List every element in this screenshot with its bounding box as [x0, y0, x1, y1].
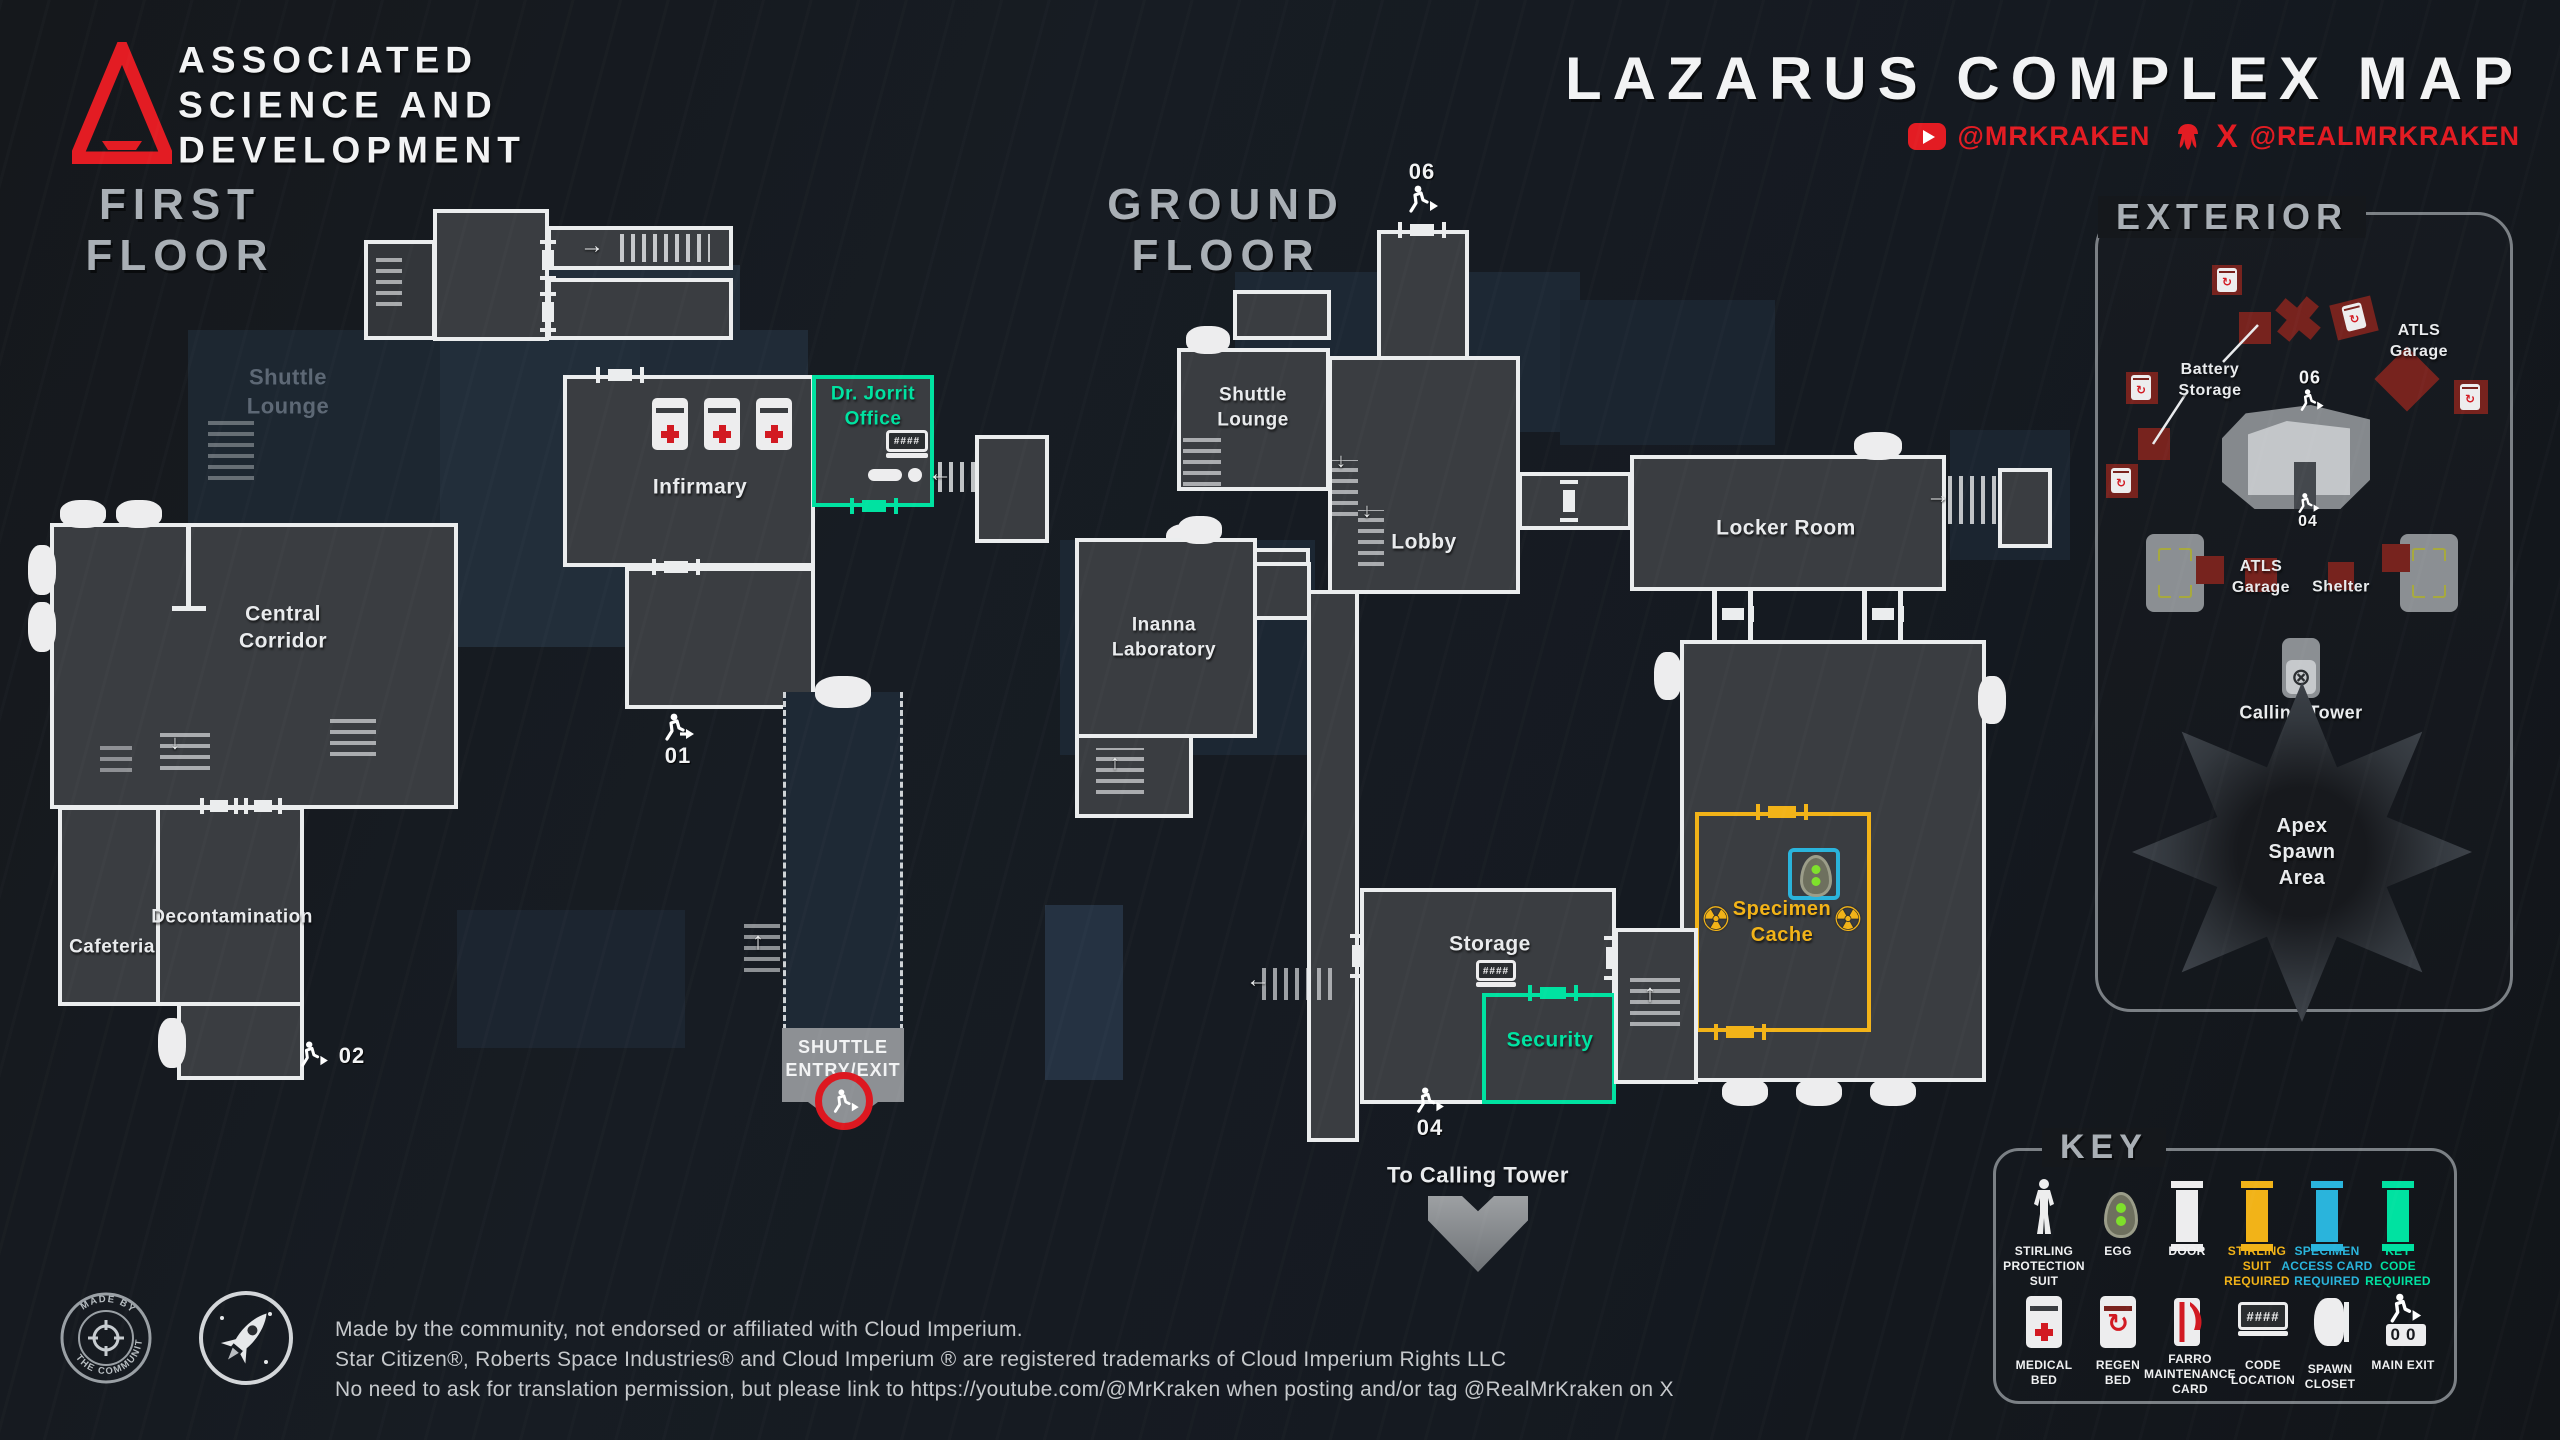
- ground-floor-title: GROUND FLOOR: [1107, 180, 1345, 281]
- room-decon-annex: [177, 1002, 304, 1080]
- stairs-icon: [1096, 748, 1144, 794]
- exit-runner-icon: [2294, 492, 2320, 514]
- exit-01-label: 01: [665, 743, 691, 769]
- spawn-closet-icon-bar: [2344, 1302, 2349, 1342]
- exit-runner-icon: [2296, 388, 2324, 412]
- code-location-icon: ####: [2238, 1302, 2288, 1336]
- keycode-door: [850, 498, 898, 514]
- corridor-right-of-office: [975, 435, 1049, 543]
- room-upper-b: [547, 278, 733, 340]
- interior-wall: [186, 523, 191, 609]
- exit-04-label: 04: [1417, 1115, 1443, 1141]
- footer-disclaimer-1: Made by the community, not endorsed or a…: [335, 1318, 1023, 1342]
- shuttle-exit-icon: [815, 1072, 873, 1130]
- youtube-handle: @MRKRAKEN: [1958, 121, 2151, 152]
- stair-arrow-down: ↓: [1336, 450, 1346, 473]
- key-item-label: CODE LOCATION: [2231, 1358, 2295, 1388]
- exit-runner-icon: [296, 1040, 328, 1068]
- door: [540, 292, 556, 332]
- first-floor-title: FIRST FLOOR: [86, 180, 275, 281]
- exterior-structure: [2196, 556, 2224, 584]
- room-gf-top: [1377, 230, 1469, 360]
- org-name: ASSOCIATED SCIENCE AND DEVELOPMENT: [178, 37, 526, 172]
- door: [1560, 480, 1578, 522]
- medical-bed-icon: [2026, 1296, 2062, 1348]
- key-item-label: STIRLING SUIT REQUIRED: [2224, 1244, 2290, 1289]
- body-icon: [868, 462, 914, 488]
- spawn-closet-icon: [815, 676, 871, 708]
- key-item-label: SPAWN CLOSET: [2305, 1362, 2355, 1392]
- door: [1398, 222, 1446, 238]
- specimen-cache-label: Specimen Cache: [1733, 896, 1831, 948]
- stair-arrow-up: ↑: [1110, 752, 1120, 775]
- ground-floor-bg: [1045, 905, 1123, 1080]
- kraken-icon: [2172, 121, 2204, 153]
- spawn-closet-icon: [1722, 1078, 1768, 1106]
- community-badge: MADE BY THE COMMUNITY: [58, 1290, 154, 1386]
- door: [652, 559, 700, 575]
- room-cafeteria: [58, 806, 160, 1006]
- specimen-card-door-icon: [2316, 1190, 2338, 1242]
- stairs-icon: [376, 258, 402, 306]
- stair-arrow-down: ↓: [170, 732, 180, 755]
- stair-arrow-left: ←: [1246, 966, 1270, 994]
- spawn-closet-icon: [1978, 676, 2006, 724]
- stirling-suit-door: [1714, 1024, 1766, 1040]
- shuttle-lounge-label-ff: Shuttle Lounge: [247, 363, 329, 420]
- spawn-closet-icon: [1178, 516, 1222, 544]
- stairs-icon: [100, 744, 132, 772]
- exit-02-label: 02: [339, 1043, 365, 1069]
- spawn-closet-icon: [1796, 1078, 1842, 1106]
- exterior-exit-06-label: 06: [2299, 368, 2321, 389]
- spawn-closet-icon: [116, 500, 162, 528]
- regen-bed-icon: ↻: [2100, 1296, 2136, 1348]
- stairs-icon: [620, 234, 710, 262]
- key-item-label: REGEN BED: [2096, 1358, 2140, 1388]
- key-item-label: EGG: [2104, 1244, 2132, 1259]
- keycode-door-icon: [2387, 1190, 2409, 1242]
- radiation-icon: ☢: [1833, 903, 1863, 937]
- central-corridor-label: Central Corridor: [239, 601, 327, 656]
- corridor-inanna-link: [1253, 562, 1311, 620]
- corridor-gf-vertical: [1307, 590, 1359, 1142]
- key-item-label: FARRO MAINTENANCE CARD: [2144, 1352, 2236, 1397]
- spawn-closet-icon: [1186, 326, 1230, 354]
- stair-arrow-up: ↑: [1644, 980, 1656, 1008]
- poster-title: LAZARUS COMPLEX MAP: [1565, 44, 2524, 113]
- spawn-closet-icon: [1854, 432, 1902, 460]
- room-gf-upper-mid: [1233, 290, 1331, 340]
- medical-bed-icon: [652, 398, 688, 450]
- key-title: KEY: [2042, 1128, 2166, 1167]
- room-below-infirmary: [625, 567, 815, 709]
- main-exit-digits: 00: [2386, 1324, 2426, 1346]
- lobby-label: Lobby: [1391, 528, 1457, 555]
- atls-garage-bottom-label: ATLS Garage: [2232, 557, 2290, 599]
- stair-arrow-left: ←: [928, 460, 952, 488]
- calling-tower-arrow: [1428, 1196, 1528, 1272]
- first-floor-bg: [457, 910, 685, 1048]
- room-locker-landing: [1998, 468, 2052, 548]
- battery-storage-label: Battery Storage: [2178, 360, 2241, 402]
- stirling-suit-door-icon: [2246, 1190, 2268, 1242]
- spawn-closet-icon: [28, 545, 56, 595]
- code-location-icon: ####: [886, 430, 928, 458]
- asd-logo-icon: [72, 42, 172, 164]
- medical-bed-icon: [756, 398, 792, 450]
- footer-disclaimer-3: No need to ask for translation permissio…: [335, 1378, 1674, 1402]
- door: [200, 798, 238, 814]
- key-item-label: MAIN EXIT: [2371, 1358, 2434, 1373]
- exterior-structure: [2382, 544, 2410, 572]
- security-label: Security: [1507, 1026, 1594, 1053]
- apex-spawn-area-label: Apex Spawn Area: [2269, 813, 2336, 891]
- decontamination-label: Decontamination: [151, 906, 313, 931]
- room-upper-block: [433, 209, 549, 341]
- gf-shuttle-lounge-label: Shuttle Lounge: [1217, 383, 1289, 432]
- code-location-icon: ####: [1476, 960, 1516, 987]
- key-item-label: DOOR: [2168, 1244, 2205, 1259]
- spawn-closet-icon: [2314, 1298, 2344, 1346]
- door: [1862, 606, 1904, 622]
- shelter-label: Shelter: [2312, 578, 2370, 599]
- stair-arrow-right: →: [580, 232, 604, 260]
- door: [540, 240, 556, 280]
- infirmary-label: Infirmary: [653, 473, 747, 500]
- spawn-closet-icon: [158, 1018, 186, 1068]
- locker-room-label: Locker Room: [1716, 514, 1856, 541]
- stairs-icon: [1948, 476, 2000, 524]
- key-item-label: MEDICAL BED: [2016, 1358, 2073, 1388]
- radiation-icon: ☢: [1701, 903, 1731, 937]
- spawn-closet-icon: [1654, 652, 1682, 700]
- key-item-label: SPECIMEN ACCESS CARD REQUIRED: [2281, 1244, 2372, 1289]
- spawn-closet-icon: [28, 602, 56, 652]
- farro-maintenance-card-icon: [2172, 1296, 2208, 1348]
- rocket-badge: [196, 1288, 296, 1388]
- dr-jorrit-office-label: Dr. Jorrit Office: [831, 382, 915, 431]
- to-calling-tower-label: To Calling Tower: [1387, 1162, 1569, 1191]
- exit-runner-icon: [660, 712, 694, 742]
- stair-arrow-down: ↓: [1362, 500, 1372, 523]
- storage-label: Storage: [1449, 930, 1531, 957]
- stairs-icon: [1183, 436, 1221, 486]
- stairs-icon: [1262, 968, 1332, 1000]
- x-handle: @REALMRKRAKEN: [2250, 121, 2520, 152]
- atls-garage-top-label: ATLS Garage: [2390, 321, 2448, 363]
- stirling-suit-icon: [2028, 1178, 2060, 1236]
- footer-disclaimer-2: Star Citizen®, Roberts Space Industries®…: [335, 1348, 1506, 1372]
- main-exit-runner-icon: [2384, 1292, 2422, 1324]
- door-icon: [2176, 1190, 2198, 1242]
- key-item-label: STIRLING PROTECTION SUIT: [2003, 1244, 2085, 1289]
- interior-wall: [172, 606, 206, 611]
- lazarus-complex-map-poster: ASSOCIATED SCIENCE AND DEVELOPMENT LAZAR…: [0, 0, 2560, 1440]
- stirling-suit-door: [1756, 804, 1808, 820]
- social-row: @MRKRAKEN X @REALMRKRAKEN: [1908, 118, 2521, 155]
- keycode-door: [1528, 985, 1578, 1001]
- exit-runner-icon: [1412, 1086, 1444, 1114]
- stairs-icon: [160, 728, 210, 770]
- ground-floor-bg: [1560, 300, 1775, 445]
- stairs-icon: [330, 714, 376, 756]
- stairs-icon: [208, 420, 254, 480]
- exterior-exit-04-label: 04: [2298, 513, 2318, 531]
- exit-runner-icon: [1404, 184, 1438, 214]
- shuttle-corridor: [783, 692, 903, 1030]
- stair-arrow-right: →: [1926, 482, 1950, 510]
- spawn-closet-icon: [1870, 1078, 1916, 1106]
- door: [596, 367, 644, 383]
- medical-bed-icon: [704, 398, 740, 450]
- inanna-laboratory-label: Inanna Laboratory: [1112, 613, 1216, 662]
- youtube-icon: [1908, 123, 1946, 150]
- spawn-closet-icon: [60, 500, 106, 528]
- key-item-label: KEY CODE REQUIRED: [2365, 1244, 2431, 1289]
- exit-06-label: 06: [1409, 159, 1435, 185]
- stair-arrow-up: ↑: [752, 928, 764, 956]
- door: [1712, 606, 1754, 622]
- cafeteria-label: Cafeteria: [69, 936, 155, 961]
- x-logo-icon: X: [2216, 118, 2237, 155]
- door: [244, 798, 282, 814]
